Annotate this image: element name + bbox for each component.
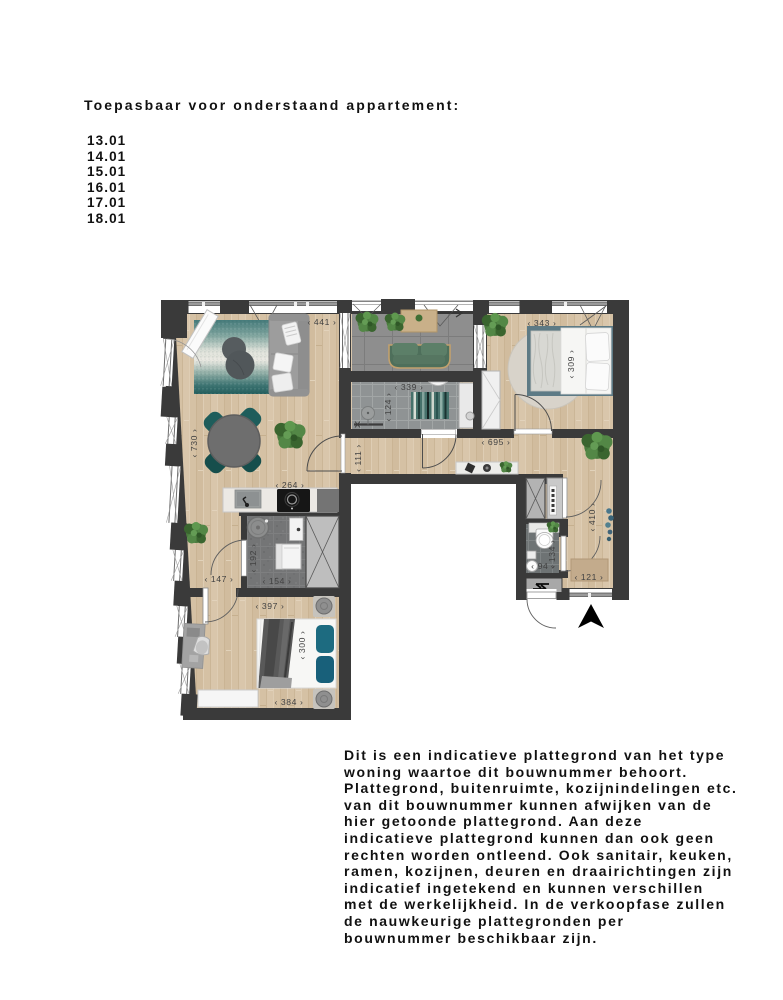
svg-text:‹ 147 ›: ‹ 147 › <box>204 574 233 584</box>
svg-text:‹ 410 ›: ‹ 410 › <box>587 502 597 531</box>
svg-text:‹ 695 ›: ‹ 695 › <box>481 437 510 447</box>
svg-text:‹ 397 ›: ‹ 397 › <box>255 601 284 611</box>
svg-text:‹ 154 ›: ‹ 154 › <box>262 576 291 586</box>
svg-text:‹ 192 ›: ‹ 192 › <box>248 543 258 572</box>
svg-text:‹ 730 ›: ‹ 730 › <box>189 428 199 457</box>
svg-text:‹ 441 ›: ‹ 441 › <box>307 317 336 327</box>
svg-text:‹ 94 ›: ‹ 94 › <box>531 561 555 571</box>
svg-text:‹ 384 ›: ‹ 384 › <box>274 697 303 707</box>
svg-text:‹ 124 ›: ‹ 124 › <box>383 392 393 421</box>
svg-text:‹ 300 ›: ‹ 300 › <box>297 630 307 659</box>
svg-text:‹ 343 ›: ‹ 343 › <box>527 318 556 328</box>
svg-text:‹ 121 ›: ‹ 121 › <box>574 572 603 582</box>
svg-text:‹ 309 ›: ‹ 309 › <box>566 349 576 378</box>
svg-text:‹ 264 ›: ‹ 264 › <box>275 480 304 490</box>
svg-text:‹ 339 ›: ‹ 339 › <box>394 382 423 392</box>
svg-text:‹ 111 ›: ‹ 111 › <box>353 444 363 472</box>
